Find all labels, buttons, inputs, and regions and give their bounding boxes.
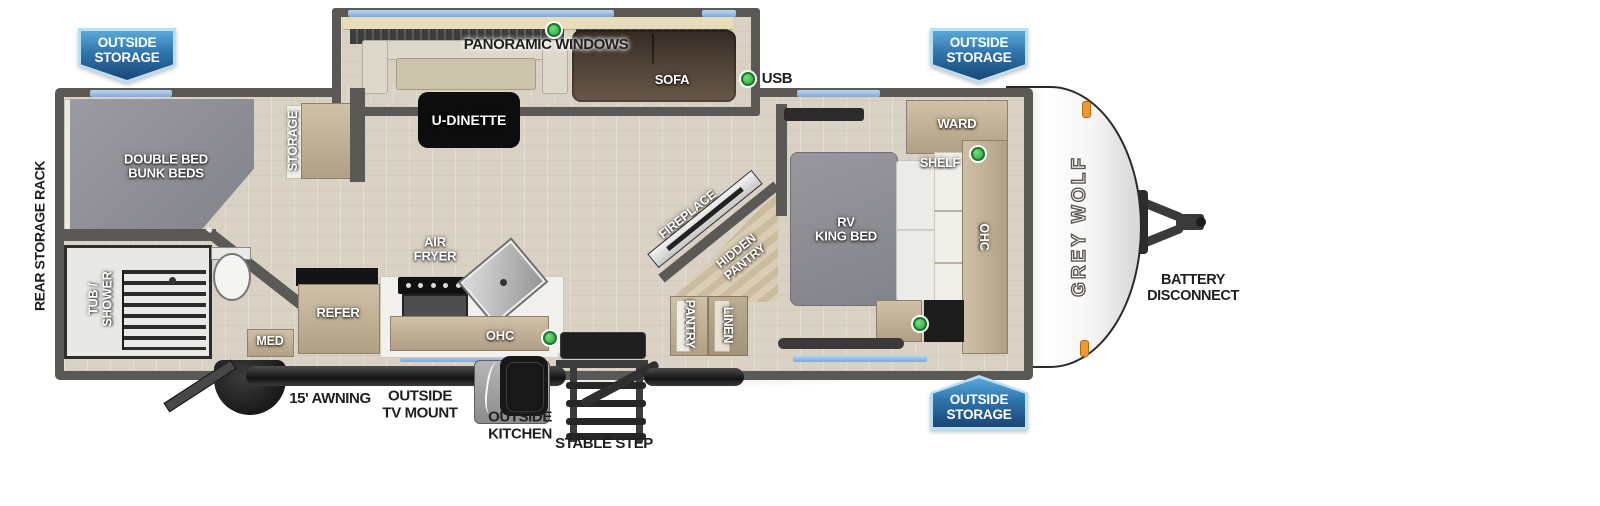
clearance-light-icon xyxy=(1082,101,1091,118)
usb-indicator-dot xyxy=(913,317,927,331)
badge-label: OUTSIDE STORAGE xyxy=(78,35,176,65)
bedroom-bench xyxy=(778,338,904,349)
dinette-table xyxy=(396,58,536,90)
med-cabinet-label: MED xyxy=(256,335,283,349)
shelf-unit xyxy=(934,152,964,304)
shelf-label: SHELF xyxy=(920,157,960,171)
step-rung xyxy=(566,400,646,407)
storage-cabinet xyxy=(301,103,353,179)
entry-mat xyxy=(560,332,646,359)
outside-storage-badge-front-top: OUTSIDE STORAGE xyxy=(930,28,1028,83)
window-strip xyxy=(348,10,614,17)
brand-logo: GREY WOLF xyxy=(1069,155,1091,297)
shower-door xyxy=(122,270,206,350)
tv-mount-label: OUTSIDE TV MOUNT xyxy=(382,389,457,422)
sofa-cushion-seam xyxy=(652,34,654,64)
interior-wall xyxy=(350,88,365,182)
shelf-divider xyxy=(934,210,962,212)
dinette-bench xyxy=(362,40,388,94)
step-rung xyxy=(566,418,646,425)
wardrobe-label: WARD xyxy=(938,117,977,131)
pantry-label: PANTRY xyxy=(682,300,696,349)
toilet xyxy=(213,253,251,301)
sink-drain-icon xyxy=(500,279,507,286)
burner-knob-icon xyxy=(443,283,448,288)
window-strip xyxy=(797,90,880,97)
bedroom-ohc-label: OHC xyxy=(976,223,990,250)
hitch-ball-socket xyxy=(1196,217,1206,227)
burner-knob-icon xyxy=(456,283,461,288)
badge-label: OUTSIDE STORAGE xyxy=(930,35,1028,65)
awning-label: 15' AWNING xyxy=(289,391,371,408)
refrigerator-label: REFER xyxy=(316,306,359,320)
usb-label: USB xyxy=(762,71,792,88)
u-dinette-callout: U-DINETTE xyxy=(418,92,520,148)
rear-storage-rack-label: REAR STORAGE RACK xyxy=(32,161,47,311)
burner-knob-icon xyxy=(406,283,411,288)
window-strip xyxy=(90,90,172,97)
floorplan-canvas: GREY WOLF BATTERY DISCONNECT PANORAMIC W… xyxy=(0,0,1600,506)
usb-indicator-dot xyxy=(741,72,755,86)
outside-storage-badge-rear: OUTSIDE STORAGE xyxy=(78,28,176,83)
u-dinette-label: U-DINETTE xyxy=(432,112,507,128)
burner-knob-icon xyxy=(418,283,423,288)
kitchen-ohc-cabinet xyxy=(390,316,549,351)
awning-roll xyxy=(644,368,744,386)
stable-step-label: STABLE STEP xyxy=(555,436,653,453)
outside-kitchen-label: OUTSIDE KITCHEN xyxy=(488,410,552,443)
bedroom-dark-cabinet xyxy=(924,300,964,342)
storage-label: STORAGE xyxy=(287,111,301,171)
shower-drain-icon xyxy=(169,277,176,284)
bed-pillows xyxy=(896,160,936,302)
sofa-label: SOFA xyxy=(655,73,690,87)
burner-knob-icon xyxy=(431,283,436,288)
cooktop xyxy=(398,277,468,294)
outside-storage-badge-front-bottom: OUTSIDE STORAGE xyxy=(930,375,1028,430)
bedroom-tv xyxy=(784,108,864,121)
usb-indicator-dot xyxy=(547,23,561,37)
shelf-divider xyxy=(934,262,962,264)
linen-label: LINEN xyxy=(720,307,734,344)
kitchen-ohc-label: OHC xyxy=(486,329,514,343)
clearance-light-icon xyxy=(1080,340,1089,357)
window-strip xyxy=(702,10,736,17)
window-strip xyxy=(793,355,927,362)
king-bed-label: RV KING BED xyxy=(815,216,877,245)
badge-label: OUTSIDE STORAGE xyxy=(930,392,1028,422)
usb-indicator-dot xyxy=(971,147,985,161)
griddle-lid-line xyxy=(506,362,544,412)
usb-indicator-dot xyxy=(543,331,557,345)
interior-wall xyxy=(64,229,216,241)
pillow-seam xyxy=(896,229,934,231)
bunk-bed-label: DOUBLE BED BUNK BEDS xyxy=(124,153,208,182)
panoramic-windows-label: PANORAMIC WINDOWS xyxy=(464,37,629,54)
tub-shower-label: TUB / SHOWER xyxy=(87,271,115,326)
battery-disconnect-label: BATTERY DISCONNECT xyxy=(1147,273,1239,305)
air-fryer-label: AIR FRYER xyxy=(414,236,457,265)
